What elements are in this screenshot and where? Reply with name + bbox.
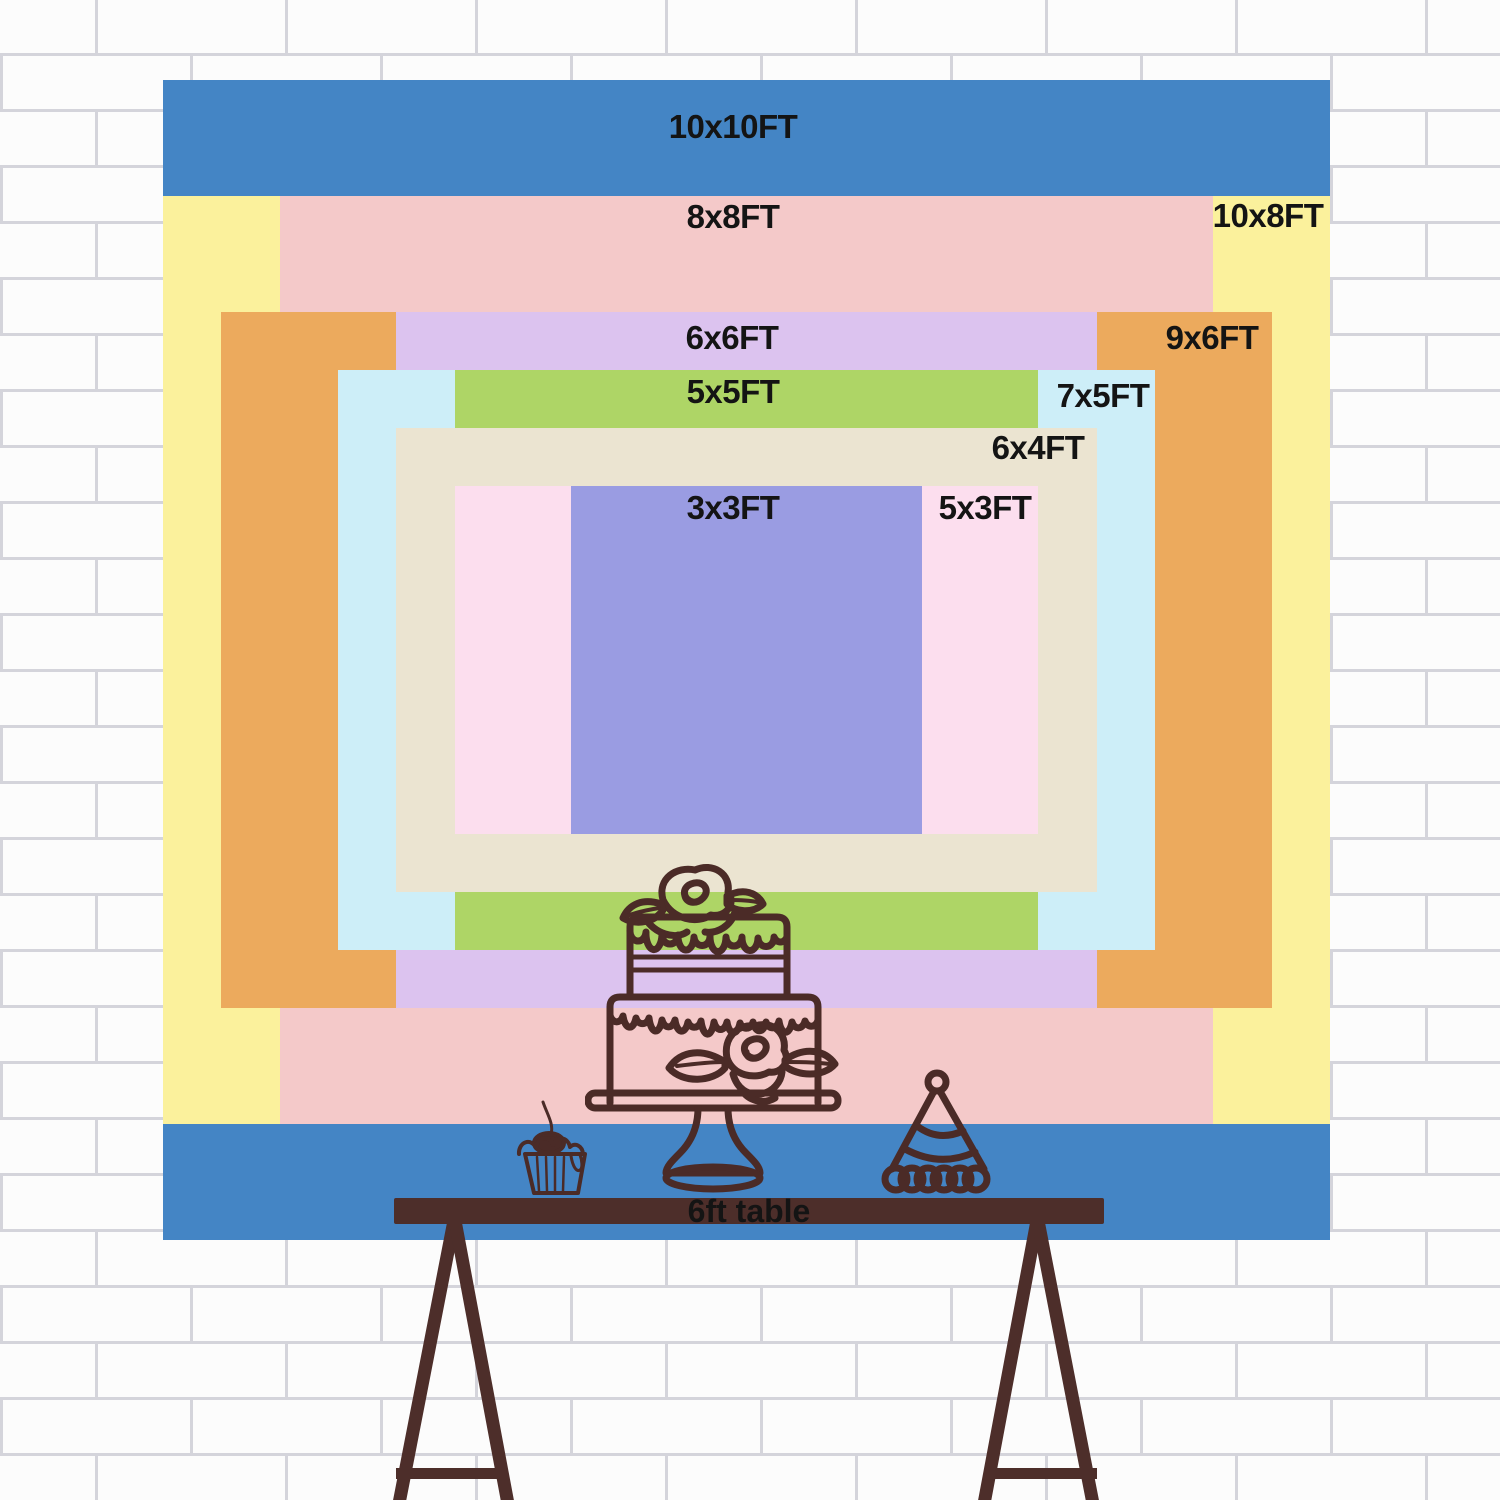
cake-stand-plate <box>588 1093 838 1108</box>
size-label-3x3FT: 3x3FT <box>687 489 780 527</box>
table-crossbar-left <box>396 1468 506 1479</box>
size-label-8x8FT: 8x8FT <box>687 198 780 236</box>
size-label-5x3FT: 5x3FT <box>939 489 1032 527</box>
size-label-10x8FT: 10x8FT <box>1213 197 1324 235</box>
scene: 10x10FT10x8FT8x8FT9x6FT6x6FT7x5FT5x5FT6x… <box>0 0 1500 1500</box>
rose-icon <box>662 867 731 919</box>
size-label-9x6FT: 9x6FT <box>1166 319 1259 357</box>
size-label-6x6FT: 6x6FT <box>686 319 779 357</box>
cake-drawing <box>585 860 843 1195</box>
size-label-7x5FT: 7x5FT <box>1057 377 1150 415</box>
hat-scallop-trim <box>885 1168 987 1190</box>
table-label: 6ft table <box>688 1198 811 1224</box>
size-label-6x4FT: 6x4FT <box>992 429 1085 467</box>
cherry-stem <box>543 1102 552 1134</box>
cupcake-drawing <box>505 1090 597 1196</box>
size-label-10x10FT: 10x10FT <box>669 108 798 146</box>
table-crossbar-right <box>987 1468 1097 1479</box>
size-chart: 10x10FT10x8FT8x8FT9x6FT6x6FT7x5FT5x5FT6x… <box>0 0 1500 1500</box>
size-label-5x5FT: 5x5FT <box>687 373 780 411</box>
party-hat-drawing <box>872 1062 994 1198</box>
size-rect-3x3FT <box>571 486 921 834</box>
table-top: 6ft table <box>394 1198 1104 1224</box>
hat-pompom <box>928 1073 946 1091</box>
cake-stand-pedestal <box>666 1108 760 1173</box>
